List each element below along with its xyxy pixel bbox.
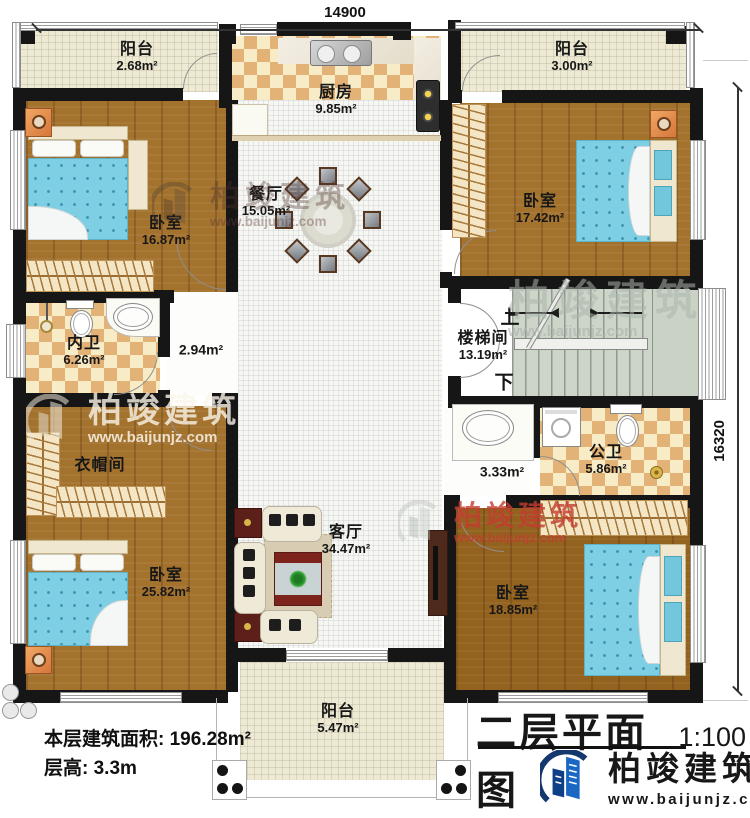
sofa-cushion [269,514,281,526]
nightstand [25,646,52,674]
headboard-cushion [664,556,682,596]
room-label-stairwell: 楼梯间 13.19m² [457,330,508,362]
sofa-cushion [243,585,255,597]
lamp-icon [32,653,46,667]
pillow [80,140,124,157]
sofa-cushion [289,619,301,631]
cabinet-knob [244,623,251,630]
wardrobe [26,260,154,292]
cabinet-knob [244,519,251,526]
stair-direction-line [598,312,642,314]
sink-basin [317,45,335,63]
stair-down-label: 下 [494,368,513,395]
extension-line [703,60,748,61]
stove [416,80,440,132]
room-label-balcony-bottom: 阳台 5.47m² [317,703,358,735]
window [60,692,182,703]
bed-headboard [28,540,128,554]
column-dot [456,783,467,794]
towel-hook [650,466,663,479]
room-label-hall-upper: 2.94m² [179,342,223,357]
landscape-stone [2,702,19,719]
window [690,140,706,240]
stair-up-label: 上 [500,303,519,330]
headboard-cushion [664,602,682,642]
headboard-cushion [654,186,672,216]
room-label-bedroom-br: 卧室 18.85m² [489,585,537,617]
window [698,288,726,400]
lamp-icon [657,117,671,131]
toilet-bowl [70,310,93,338]
kitchen-counter-edge [232,135,441,141]
column-dot [232,783,243,794]
sliding-door [286,650,388,661]
window [10,540,26,644]
wardrobe [26,432,60,516]
floor-height-stat: 层高: 3.3m [44,753,137,780]
wall [13,88,183,101]
nightstand [650,110,677,138]
window [686,22,695,88]
toilet [610,404,642,414]
dimension-line-top [36,29,700,31]
sink-basin [343,45,361,63]
room-label-balcony-tl: 阳台 2.68m² [116,41,157,73]
column-base [436,760,471,800]
headboard-cushion [654,150,672,180]
nightstand [25,108,52,137]
room-label-living: 客厅 34.47m² [322,524,370,556]
sofa [260,610,318,644]
sofa [234,542,266,614]
tv-icon [433,546,438,600]
vanity-basin [462,410,514,446]
lamp-icon [40,320,53,333]
coffee-table [274,552,322,606]
brand-logo-icon [540,750,598,808]
landscape-stone [20,702,37,719]
room-label-dining: 餐厅 15.05m² [242,186,290,218]
side-cabinet [234,508,262,538]
dining-table [300,192,356,248]
washer-drum [551,418,571,438]
sofa-cushion [286,514,298,526]
dimension-height: 16320 [711,420,728,462]
lamp-icon [32,115,46,129]
toilet-bowl [616,415,639,447]
lamp-cord [46,303,48,321]
column-dot [441,783,452,794]
room-label-bedroom-tl: 卧室 16.87m² [142,215,190,247]
wall [13,393,170,407]
column-dot [217,783,228,794]
drawing-scale: 1:100 [678,722,746,753]
washing-machine [542,407,581,447]
kitchen-cabinet [232,104,268,138]
brand-url: www.baijunjz.com [608,792,750,807]
floor-height-label: 层高: [44,758,88,779]
wall [502,90,692,103]
dining-chair [319,167,337,185]
sofa-cushion [243,549,255,561]
pillow [32,554,76,571]
brand-name: 柏竣建筑 [608,752,750,785]
sofa-cushion [303,514,315,526]
dining-chair [319,255,337,273]
bed-sheet [638,556,660,664]
stair-landing [652,286,703,400]
dimension-line-right [737,88,739,692]
window [12,22,21,88]
wall [393,22,411,40]
title-underline [478,746,686,749]
plant-icon [289,570,307,588]
dining-chair [363,211,381,229]
column-dot [217,765,228,776]
stair-arrow-icon [590,308,599,318]
dimension-width: 14900 [305,4,385,21]
wall [448,289,461,303]
wardrobe [56,486,166,518]
room-label-cloakroom: 衣帽间 [74,457,125,475]
sofa [262,506,322,542]
side-cabinet [234,612,262,642]
landscape-stone [2,684,19,701]
wardrobe [540,500,688,536]
pillow [80,554,124,571]
sofa-cushion [269,619,281,631]
room-label-bath-public: 公卫 5.86m² [585,444,626,476]
room-label-bedroom-tr: 卧室 17.42m² [516,193,564,225]
pillow [32,140,76,157]
room-label-kitchen: 厨房 9.85m² [315,84,356,116]
bed-bench [128,140,148,210]
window [10,130,26,230]
wash-basin [113,303,153,331]
floor-height-value: 3.3m [94,758,137,779]
window [690,545,706,663]
floor-plan: 上 下 [0,0,750,818]
room-label-hall-lower: 3.33m² [480,464,524,479]
floor-area-stat: 本层建筑面积: 196.28m² [44,724,251,751]
wall [238,648,286,662]
wardrobe [452,104,486,238]
sofa-cushion [243,567,255,579]
wall [219,28,232,108]
tv-stand [428,530,448,616]
room-label-balcony-tr: 阳台 3.00m² [551,41,592,73]
burner [421,87,435,101]
burner [421,110,435,124]
floor-area-value: 196.28m² [170,729,251,750]
room-label-bath-ensuite: 内卫 6.26m² [63,335,104,367]
wall [448,276,702,289]
room-label-bedroom-bl: 卧室 25.82m² [142,567,190,599]
kitchen-sink [310,40,372,66]
floor-area-label: 本层建筑面积: [44,729,164,750]
washer-panel [545,410,577,414]
brand-block: 柏竣建筑 www.baijunjz.com [540,750,750,808]
bed-sheet [628,146,650,236]
window [6,324,26,378]
wall [440,100,452,230]
column-base [212,760,247,800]
toilet [66,300,94,309]
stair-arrow-icon [550,308,559,318]
column-dot [455,765,466,776]
wall [388,648,444,662]
